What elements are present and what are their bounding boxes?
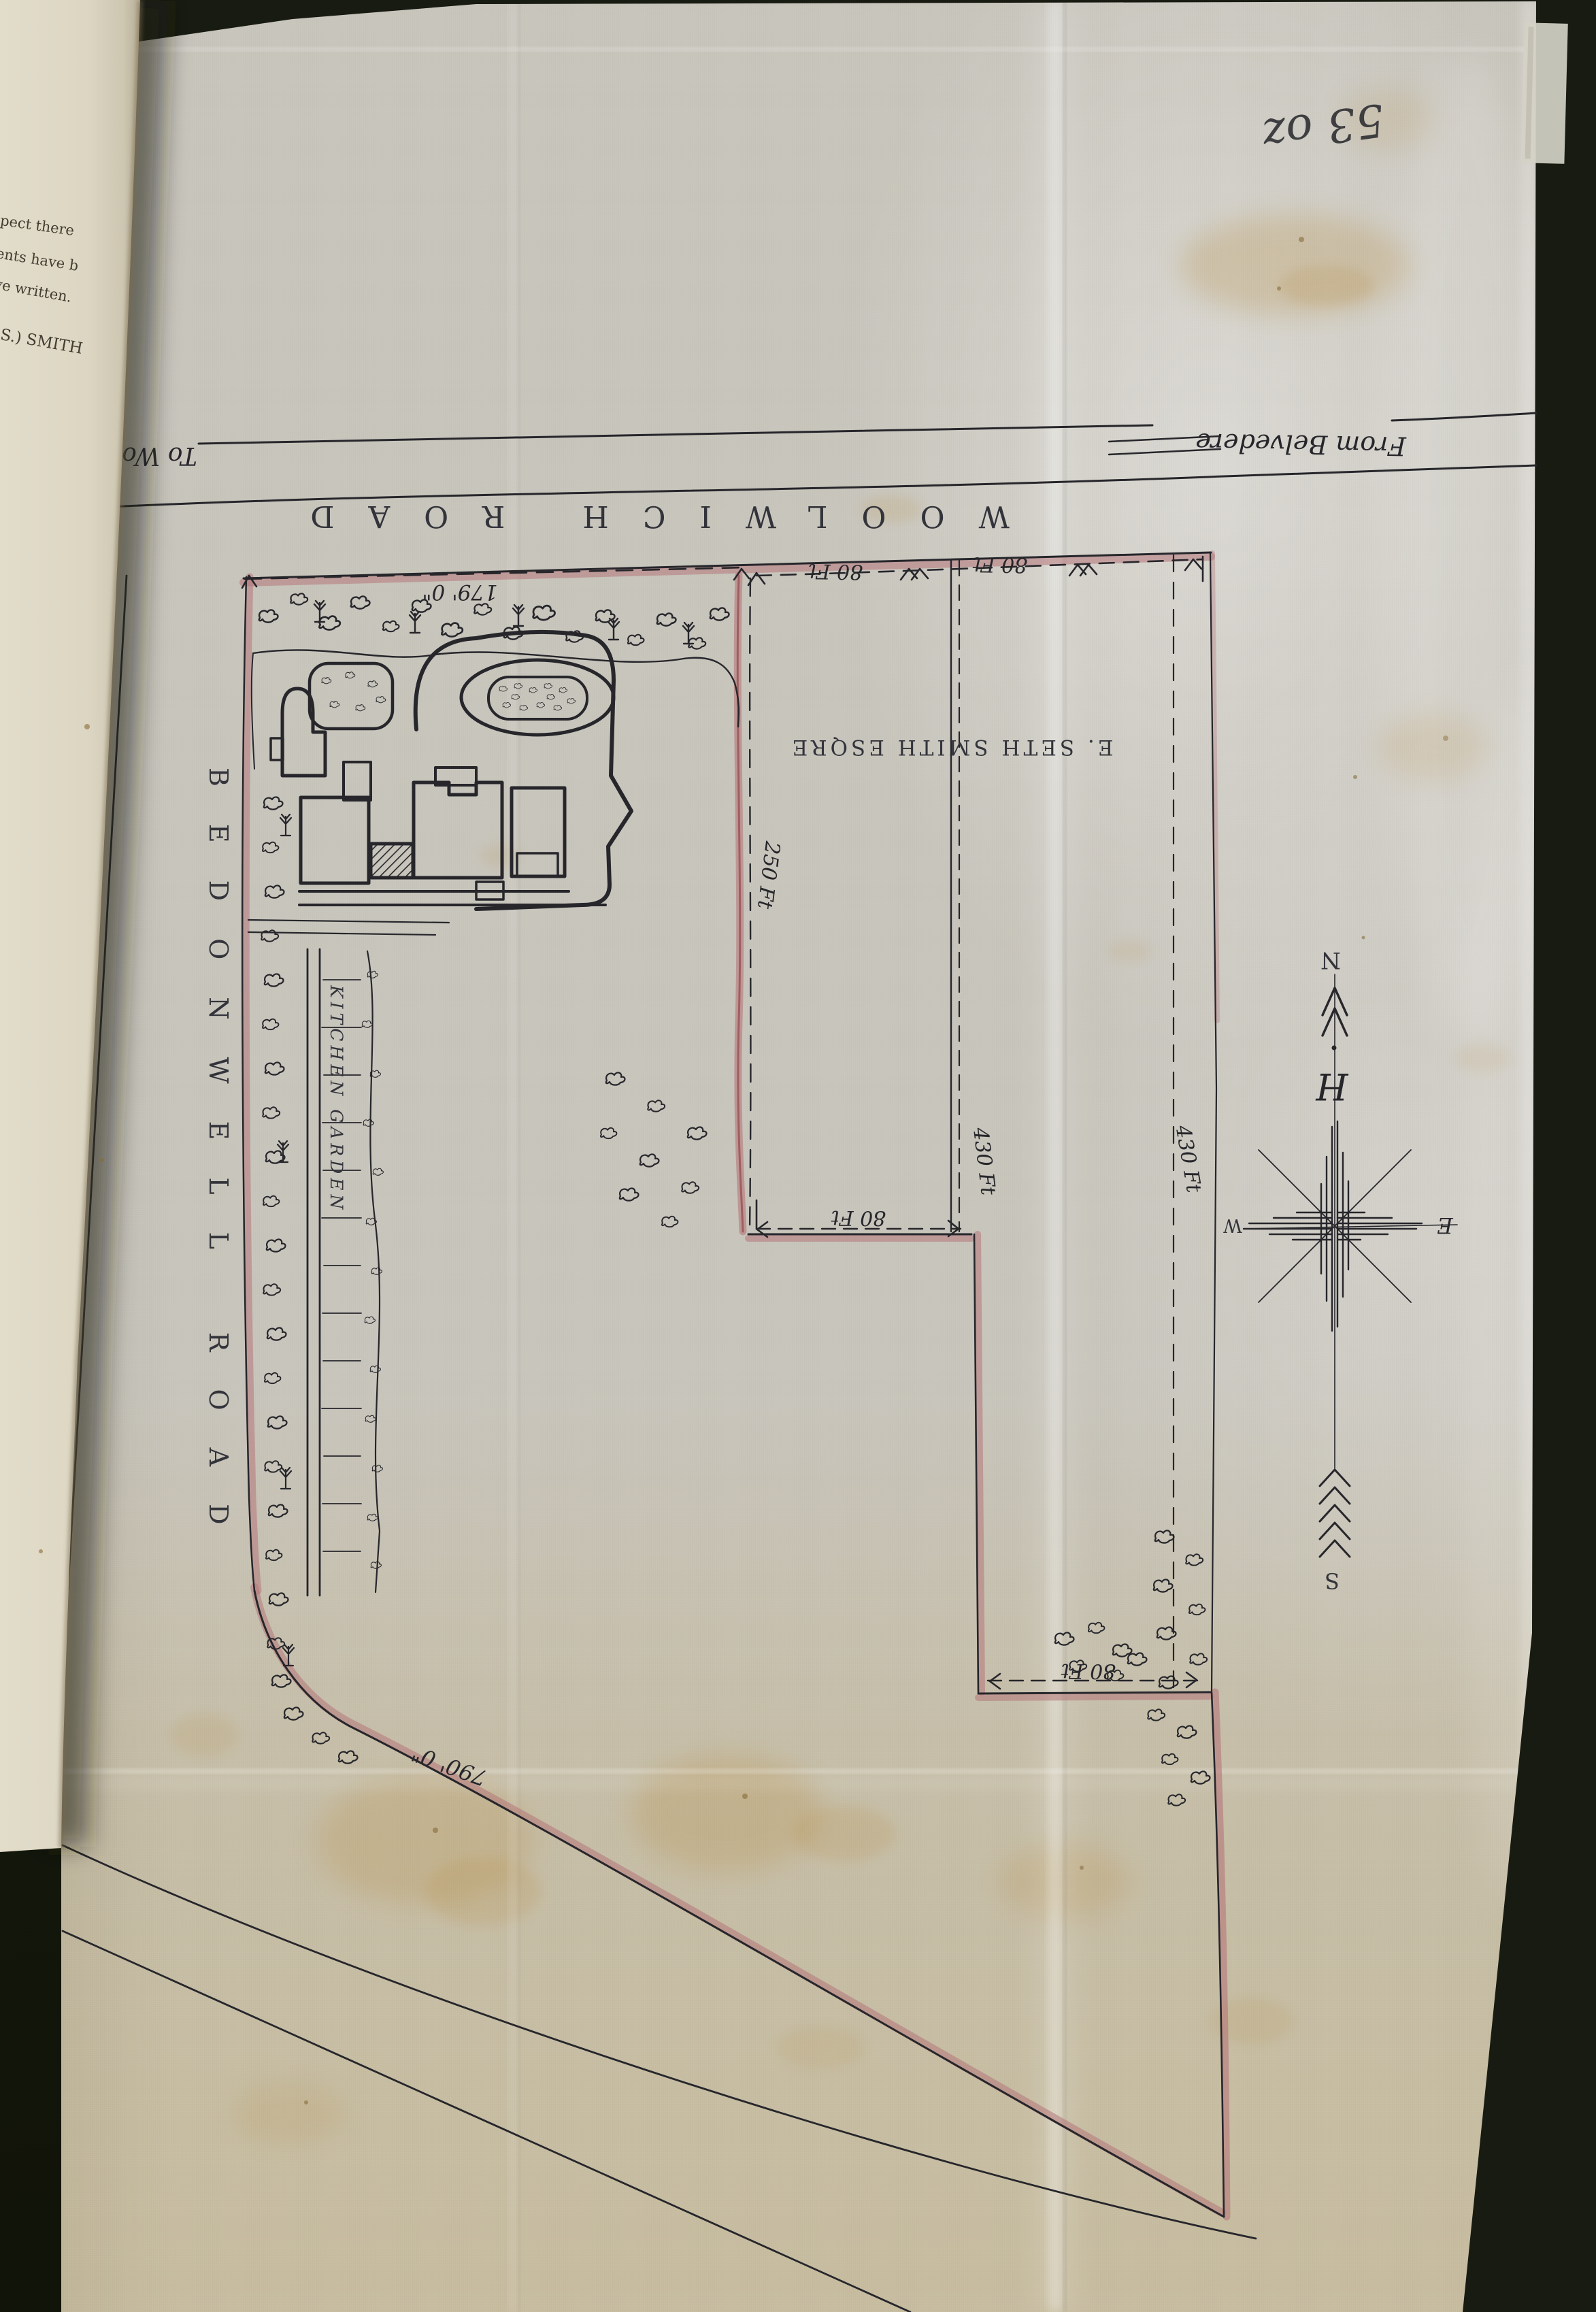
compass-rose — [1244, 974, 1457, 1557]
west-hedge-belt — [261, 797, 357, 1763]
compass-east-label: E — [1437, 1212, 1453, 1238]
plan-drawing: 53 oz — [0, 0, 1596, 2312]
boundary-ink-lines — [242, 552, 1224, 2217]
folio-inscription: 53 oz — [1259, 93, 1388, 162]
espalier-bushes — [362, 971, 383, 1568]
woolwich-road-label: WOOLWICH ROAD — [276, 499, 1010, 533]
woolwich-road-lines — [68, 413, 1536, 509]
compass-west-label: W — [1223, 1215, 1242, 1236]
compass-south-label: S — [1325, 1568, 1340, 1593]
dim-80-a: 80 Ft — [808, 559, 863, 583]
tape-repair — [1520, 22, 1567, 164]
compass-ornament: H — [1316, 1065, 1349, 1108]
owner-label: E. SETH SMITH ESQRE — [789, 735, 1114, 759]
scanned-deed-plan: 53 oz — [0, 0, 1596, 2312]
field-bushes — [601, 1072, 707, 1227]
boundary-pink-wash — [244, 553, 1227, 2217]
compass-north-label: N — [1320, 946, 1341, 974]
dim-430-a: 430 Ft — [968, 1125, 1000, 1197]
ink-drawing — [63, 413, 1536, 2312]
nw-bed-bushes — [322, 672, 386, 711]
from-belvedere-note: From Belvedere — [1195, 427, 1407, 461]
dim-80-mid: 80 Ft — [831, 1206, 886, 1229]
bedonwell-road-label: BEDONWELL ROAD — [203, 767, 233, 1562]
dim-179: 179' 0" — [422, 580, 498, 604]
fold-creases — [63, 0, 1578, 2312]
backdrop-edges — [60, 0, 1596, 2312]
dim-80-b: 80 Ft — [972, 552, 1028, 576]
dim-430-b: 430 Ft — [1170, 1123, 1206, 1195]
dim-80-low: 80 Ft — [1061, 1659, 1116, 1683]
house-complex — [271, 632, 631, 909]
bedonwell-road-lines — [63, 576, 1256, 2312]
dim-250: 250 Ft — [752, 840, 784, 911]
south-fletching-icon — [1320, 1470, 1350, 1557]
kitchen-garden-label: KITCHEN GARDEN — [327, 985, 346, 1213]
